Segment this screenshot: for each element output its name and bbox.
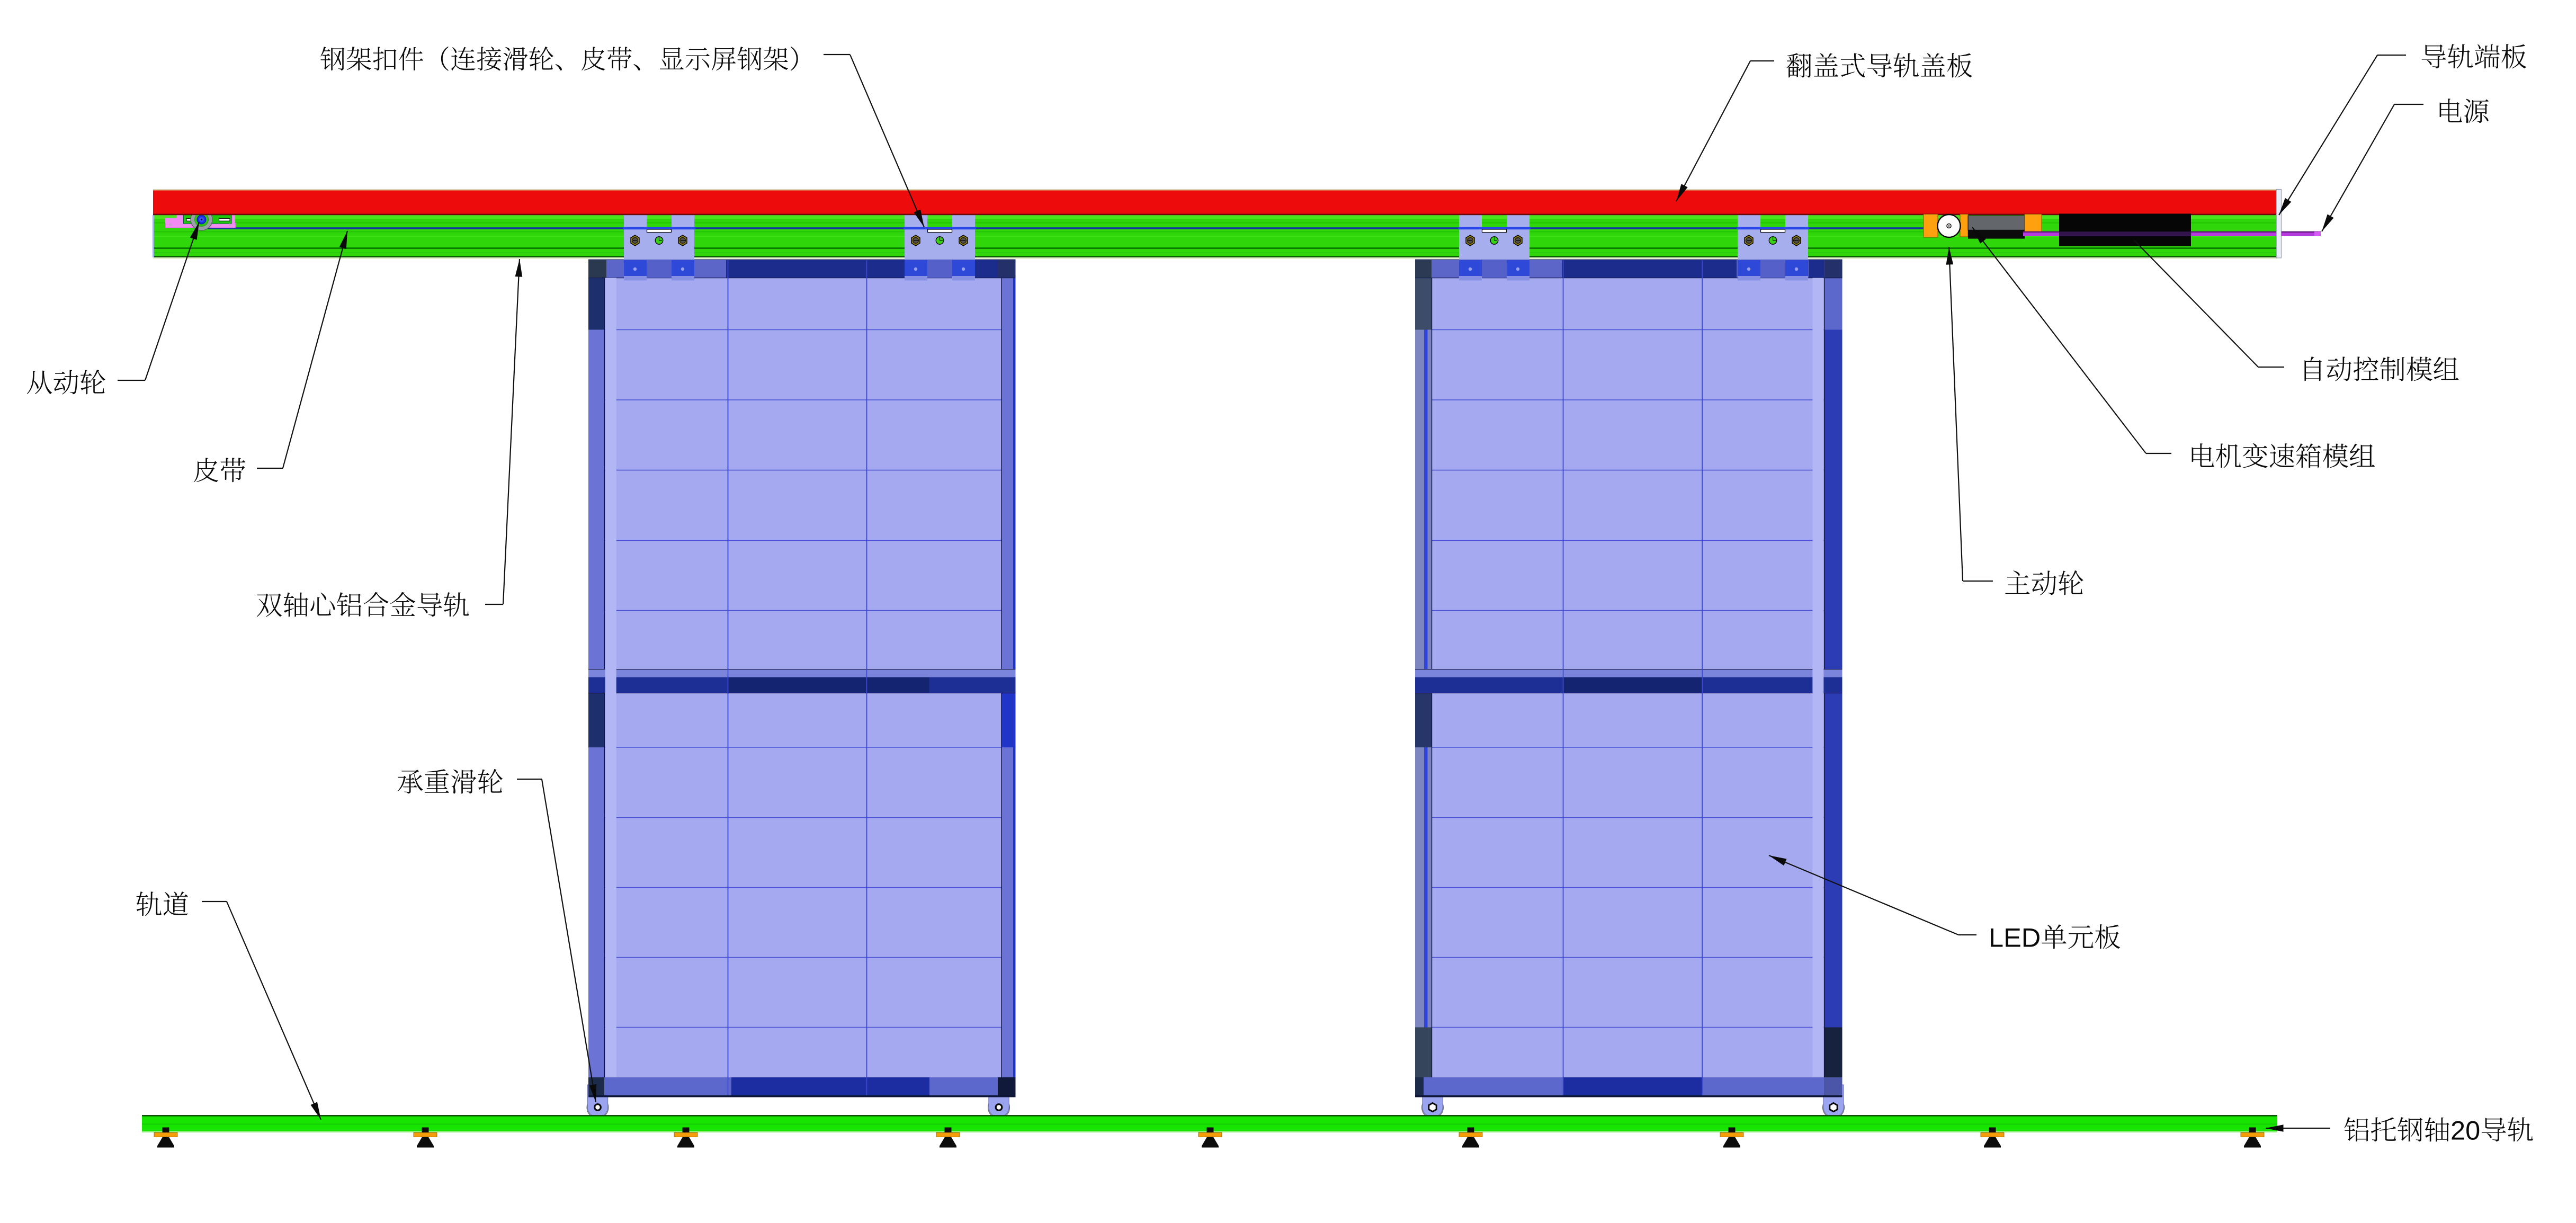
svg-text:LED: LED — [1989, 923, 2041, 953]
svg-text:20: 20 — [2450, 1115, 2480, 1146]
